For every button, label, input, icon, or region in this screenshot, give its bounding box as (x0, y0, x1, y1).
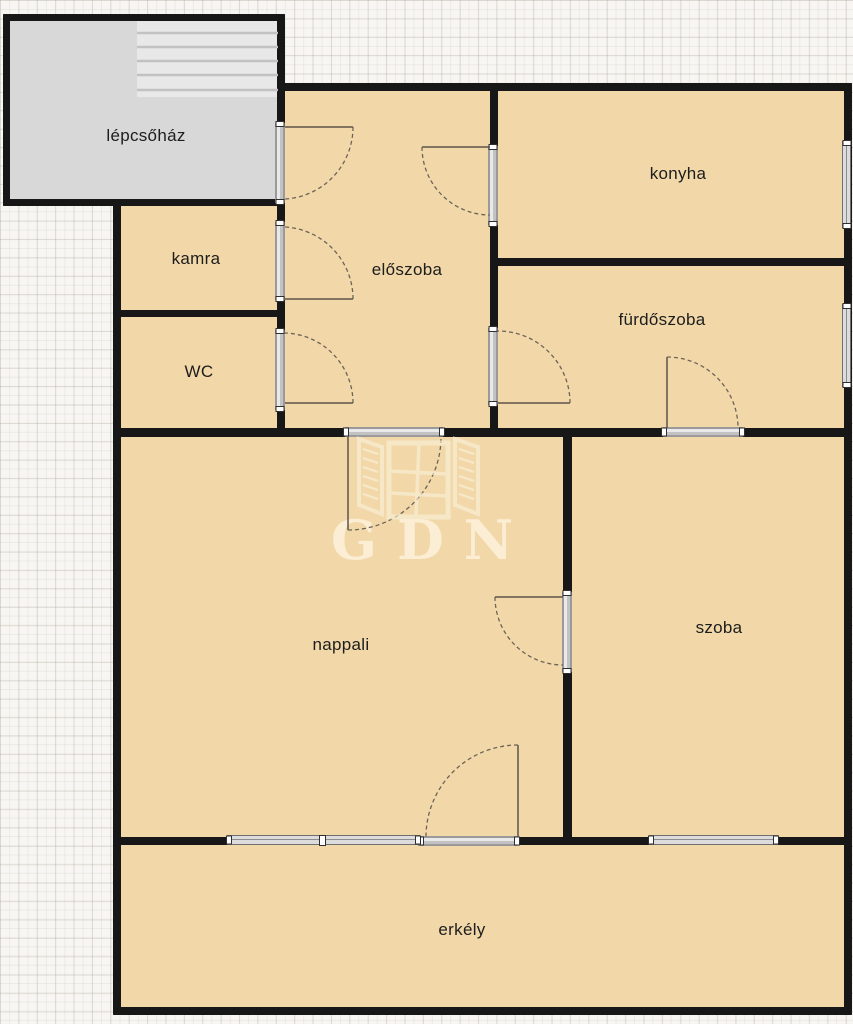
wall-lepcsohaz-left (3, 14, 10, 206)
door-furdoszoba-szoba (663, 427, 743, 437)
wall-lepcsohaz-top (3, 14, 285, 21)
window-furdoszoba (842, 304, 851, 387)
door-nappali (345, 427, 443, 437)
door-wc (275, 330, 285, 410)
door-erkely (420, 836, 518, 846)
wall-balcony-bottom (113, 1007, 852, 1015)
door-kamra (275, 222, 285, 300)
stairs-area (137, 19, 278, 97)
room-label-nappali: nappali (313, 635, 370, 655)
window-konyha (842, 141, 851, 228)
wall-apartment-left (113, 199, 121, 1015)
floorplan-canvas: GDN lépcsőház kamra WC előszoba konyha f… (0, 0, 853, 1024)
room-label-eloszoba: előszoba (372, 260, 442, 280)
door-szoba (562, 592, 572, 672)
room-label-konyha: konyha (650, 164, 707, 184)
room-label-wc: WC (185, 362, 214, 382)
room-label-lepcsohaz: lépcsőház (106, 126, 185, 146)
wall-konyha-furdoszoba (490, 258, 852, 266)
window-szoba (649, 835, 778, 845)
window-nappali-joint (319, 835, 326, 846)
room-label-erkely: erkély (438, 920, 485, 940)
room-kamra-wc (116, 202, 282, 433)
wall-lepcsohaz-bottom (3, 199, 285, 206)
door-furdoszoba (488, 328, 498, 405)
room-label-furdoszoba: fürdőszoba (618, 310, 705, 330)
room-label-kamra: kamra (172, 249, 221, 269)
door-entry-lepcsohaz (275, 123, 285, 203)
room-label-szoba: szoba (696, 618, 743, 638)
wall-apartment-top (277, 83, 852, 91)
watermark-text: GDN (331, 508, 533, 572)
wall-kamra-wc-divider (113, 310, 285, 317)
door-konyha (488, 146, 498, 225)
